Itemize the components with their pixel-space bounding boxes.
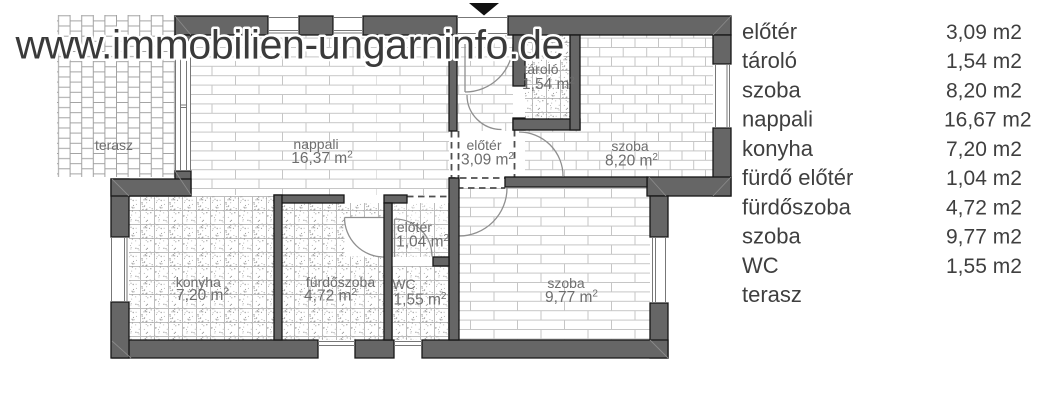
svg-text:nappali: nappali (742, 107, 813, 132)
svg-text:konyha: konyha (742, 136, 814, 161)
svg-text:WC: WC (742, 253, 779, 278)
svg-text:WC: WC (392, 276, 415, 292)
svg-text:4,72 m2: 4,72 m2 (946, 196, 1022, 219)
svg-text:1,55 m2: 1,55 m2 (394, 291, 447, 309)
svg-text:szoba: szoba (742, 224, 801, 249)
svg-text:9,77 m2: 9,77 m2 (545, 289, 598, 307)
svg-text:1,54 m2: 1,54 m2 (946, 50, 1022, 73)
svg-text:terasz: terasz (742, 282, 802, 307)
svg-text:16,37 m2: 16,37 m2 (291, 150, 353, 168)
svg-text:tároló: tároló (742, 48, 797, 73)
svg-text:terasz: terasz (95, 137, 133, 153)
svg-text:szoba: szoba (742, 77, 801, 102)
svg-text:8,20 m2: 8,20 m2 (946, 79, 1022, 102)
svg-text:8,20 m2: 8,20 m2 (605, 152, 658, 170)
svg-text:7,20 m2: 7,20 m2 (176, 287, 229, 305)
svg-text:1,54 m2: 1,54 m2 (522, 76, 575, 94)
svg-text:fürdőszoba: fürdőszoba (742, 194, 852, 219)
svg-text:9,77 m2: 9,77 m2 (946, 226, 1022, 249)
svg-text:16,67 m2: 16,67 m2 (944, 109, 1032, 132)
svg-text:7,20 m2: 7,20 m2 (946, 138, 1022, 161)
svg-text:www.immobilien-ungarninfo.de: www.immobilien-ungarninfo.de (15, 21, 565, 67)
svg-text:előtér: előtér (742, 19, 797, 44)
svg-text:4,72 m2: 4,72 m2 (304, 287, 357, 305)
svg-text:1,55 m2: 1,55 m2 (946, 255, 1022, 278)
svg-text:3,09 m2: 3,09 m2 (461, 151, 514, 169)
svg-text:fürdő előtér: fürdő előtér (742, 165, 853, 190)
svg-text:1,04 m2: 1,04 m2 (396, 233, 449, 251)
svg-text:3,09 m2: 3,09 m2 (946, 21, 1022, 44)
svg-text:1,04 m2: 1,04 m2 (946, 167, 1022, 190)
